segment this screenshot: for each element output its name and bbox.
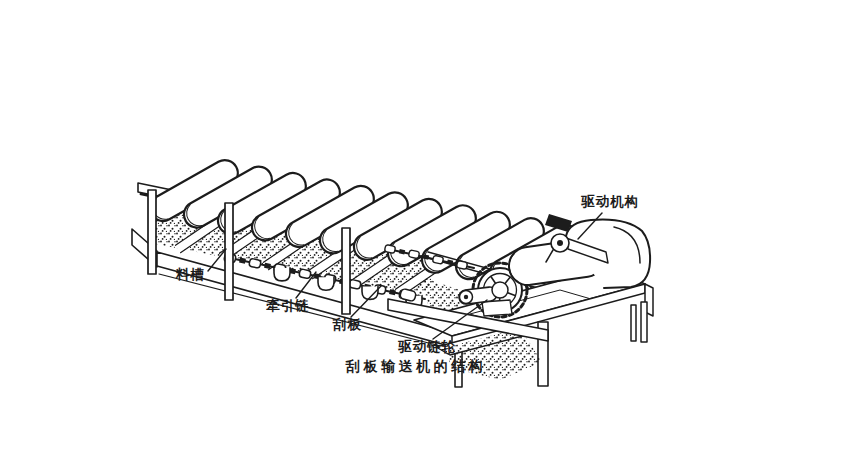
label-drive-sprocket: 驱动链轮 — [398, 340, 456, 354]
label-trough: 料槽 — [176, 268, 205, 282]
table-leg — [641, 302, 647, 342]
support-post — [148, 190, 156, 274]
scraper-hook — [274, 268, 290, 281]
support-post — [225, 203, 233, 300]
label-drive-mechanism: 驱动机构 — [581, 195, 639, 209]
figure-caption: 刮板输送机的结构 — [346, 359, 486, 373]
scraper-hook — [318, 277, 334, 290]
support-post — [342, 228, 350, 314]
label-traction-chain: 牵引链 — [266, 299, 310, 313]
figure-scraper-conveyor: 驱动机构 料槽 牵引链 刮板 驱动链轮 刮板输送机的结构 — [0, 0, 847, 474]
label-scraper: 刮板 — [333, 318, 362, 332]
table-leg — [631, 305, 636, 341]
scraper-conveyor-diagram — [0, 0, 847, 474]
